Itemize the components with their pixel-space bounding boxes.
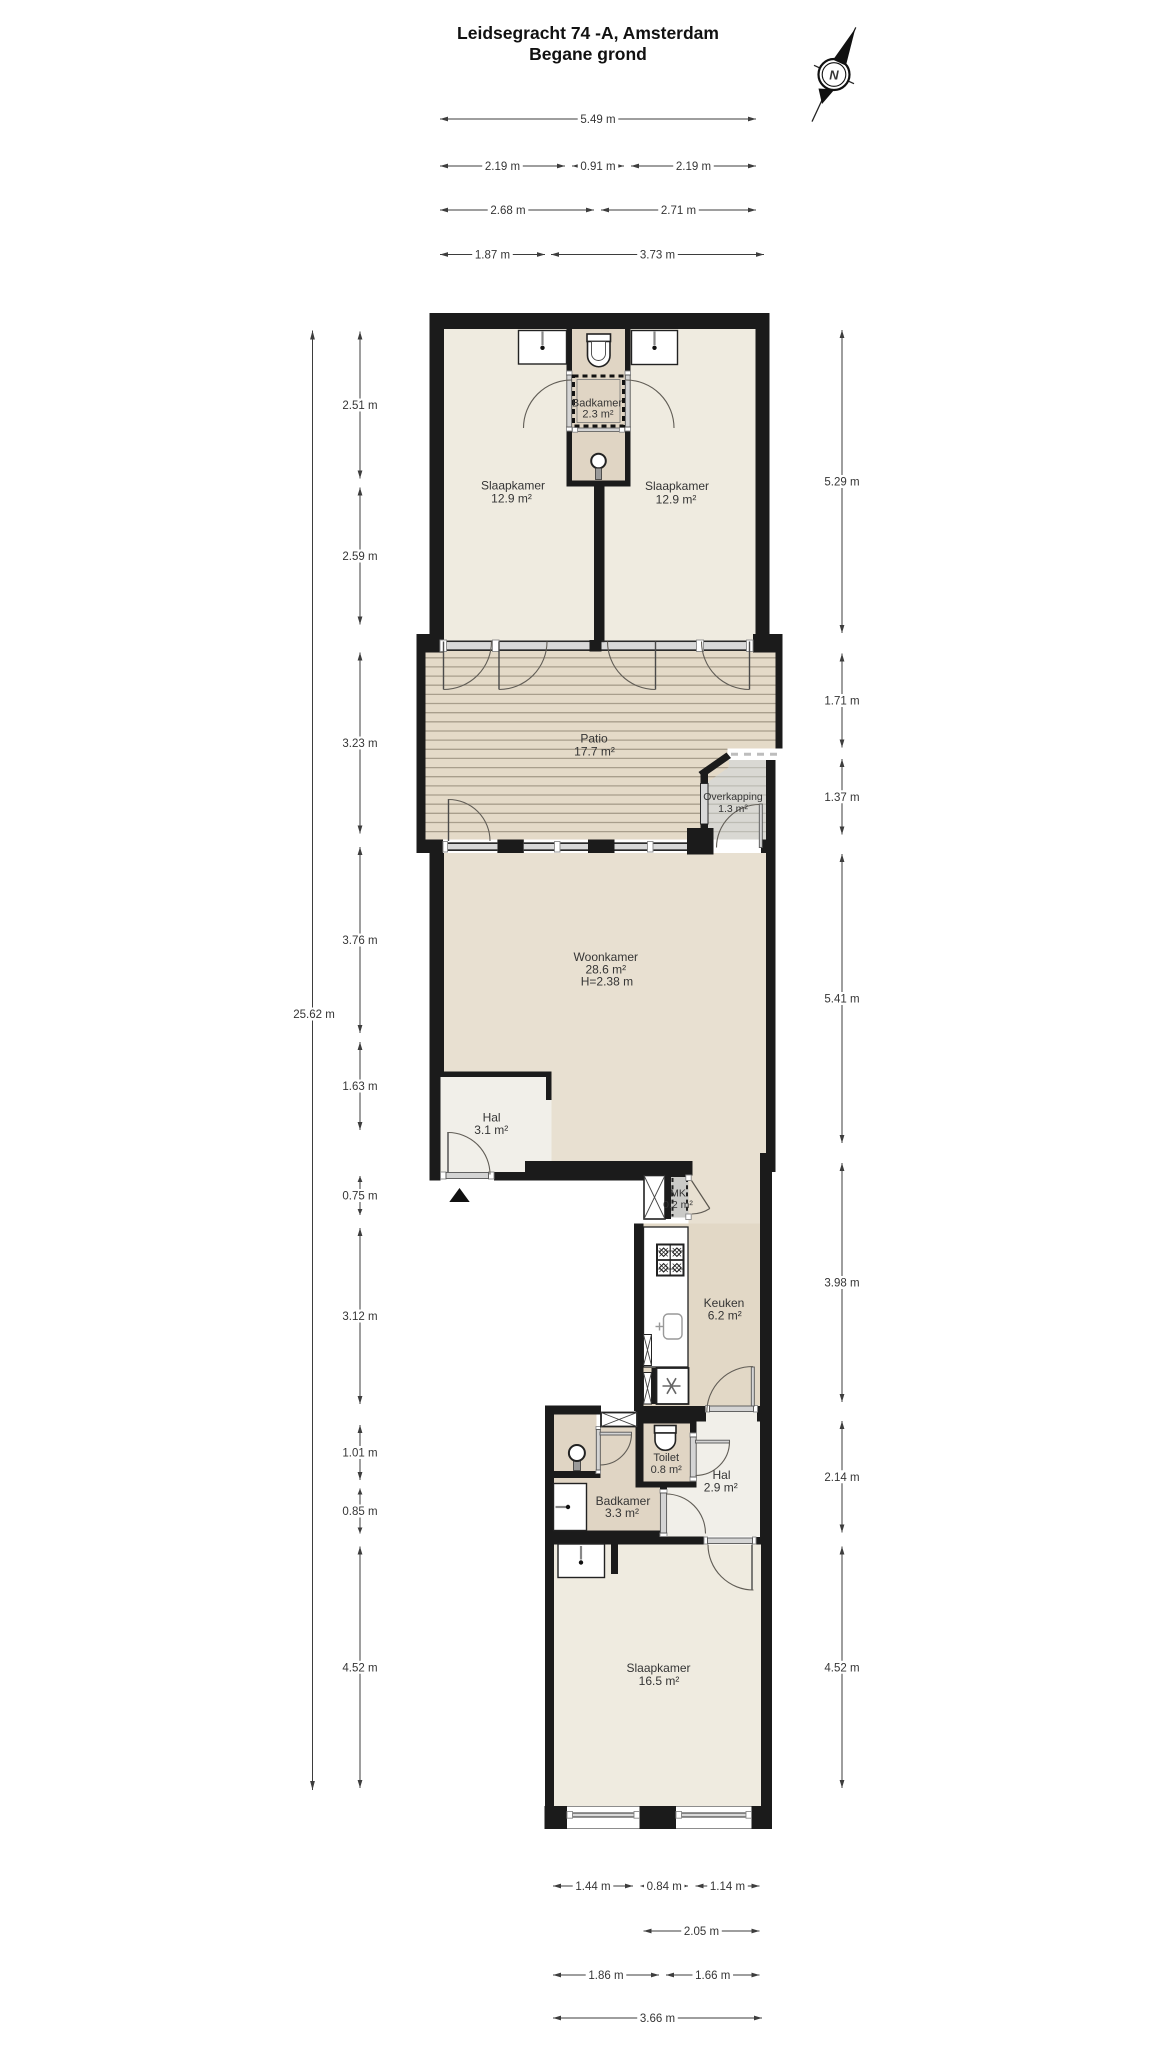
svg-text:4.52 m: 4.52 m	[824, 1662, 859, 1674]
svg-text:1.14 m: 1.14 m	[710, 1881, 745, 1893]
svg-text:1.01 m: 1.01 m	[342, 1448, 377, 1460]
svg-text:0.85 m: 0.85 m	[342, 1506, 377, 1518]
svg-text:MK: MK	[670, 1188, 686, 1200]
svg-text:3.73 m: 3.73 m	[640, 250, 675, 262]
svg-text:4.52 m: 4.52 m	[342, 1662, 377, 1674]
svg-text:1.63 m: 1.63 m	[342, 1081, 377, 1093]
svg-text:3.66 m: 3.66 m	[640, 2013, 675, 2025]
svg-text:16.5 m²: 16.5 m²	[639, 1674, 680, 1688]
svg-text:3.3 m²: 3.3 m²	[605, 1506, 639, 1520]
svg-text:2.05 m: 2.05 m	[684, 1926, 719, 1938]
svg-text:17.7 m²: 17.7 m²	[574, 745, 615, 759]
svg-text:0.2 m²: 0.2 m²	[663, 1199, 693, 1211]
svg-text:0.75 m: 0.75 m	[342, 1191, 377, 1203]
svg-text:3.98 m: 3.98 m	[824, 1278, 859, 1290]
svg-text:2.19 m: 2.19 m	[485, 161, 520, 173]
svg-text:N: N	[829, 68, 839, 83]
svg-text:1.44 m: 1.44 m	[575, 1881, 610, 1893]
svg-text:1.86 m: 1.86 m	[588, 1970, 623, 1982]
svg-text:2.19 m: 2.19 m	[676, 161, 711, 173]
svg-text:0.91 m: 0.91 m	[580, 161, 615, 173]
svg-text:Overkapping: Overkapping	[703, 791, 763, 803]
svg-text:5.49 m: 5.49 m	[580, 114, 615, 126]
svg-text:Begane grond: Begane grond	[529, 44, 647, 64]
svg-text:Toilet: Toilet	[653, 1452, 679, 1464]
svg-text:2.14 m: 2.14 m	[824, 1472, 859, 1484]
svg-text:Leidsegracht 74 -A, Amsterdam: Leidsegracht 74 -A, Amsterdam	[457, 23, 719, 43]
svg-text:2.71 m: 2.71 m	[661, 205, 696, 217]
svg-text:1.66 m: 1.66 m	[695, 1970, 730, 1982]
svg-text:12.9 m²: 12.9 m²	[491, 492, 532, 506]
svg-text:2.3 m²: 2.3 m²	[582, 409, 614, 421]
svg-text:5.29 m: 5.29 m	[824, 477, 859, 489]
svg-text:Slaapkamer: Slaapkamer	[481, 479, 545, 493]
svg-text:Slaapkamer: Slaapkamer	[645, 479, 709, 493]
svg-text:3.1 m²: 3.1 m²	[474, 1123, 508, 1137]
svg-text:0.84 m: 0.84 m	[647, 1881, 682, 1893]
svg-text:3.12 m: 3.12 m	[342, 1311, 377, 1323]
svg-text:H=2.38 m: H=2.38 m	[581, 975, 633, 989]
svg-text:2.9 m²: 2.9 m²	[704, 1481, 738, 1495]
svg-text:0.8 m²: 0.8 m²	[651, 1464, 683, 1476]
svg-text:Patio: Patio	[580, 732, 608, 746]
svg-text:1.71 m: 1.71 m	[824, 696, 859, 708]
svg-text:2.51 m: 2.51 m	[342, 400, 377, 412]
svg-text:Slaapkamer: Slaapkamer	[626, 1661, 690, 1675]
svg-text:2.59 m: 2.59 m	[342, 551, 377, 563]
svg-text:1.87 m: 1.87 m	[475, 250, 510, 262]
svg-text:3.23 m: 3.23 m	[342, 738, 377, 750]
svg-text:25.62 m: 25.62 m	[293, 1009, 335, 1021]
svg-text:6.2 m²: 6.2 m²	[708, 1309, 742, 1323]
svg-text:3.76 m: 3.76 m	[342, 935, 377, 947]
svg-text:2.68 m: 2.68 m	[490, 205, 525, 217]
svg-text:5.41 m: 5.41 m	[824, 994, 859, 1006]
svg-text:12.9 m²: 12.9 m²	[656, 493, 697, 507]
svg-text:1.37 m: 1.37 m	[824, 792, 859, 804]
svg-text:1.3 m²: 1.3 m²	[718, 803, 748, 815]
